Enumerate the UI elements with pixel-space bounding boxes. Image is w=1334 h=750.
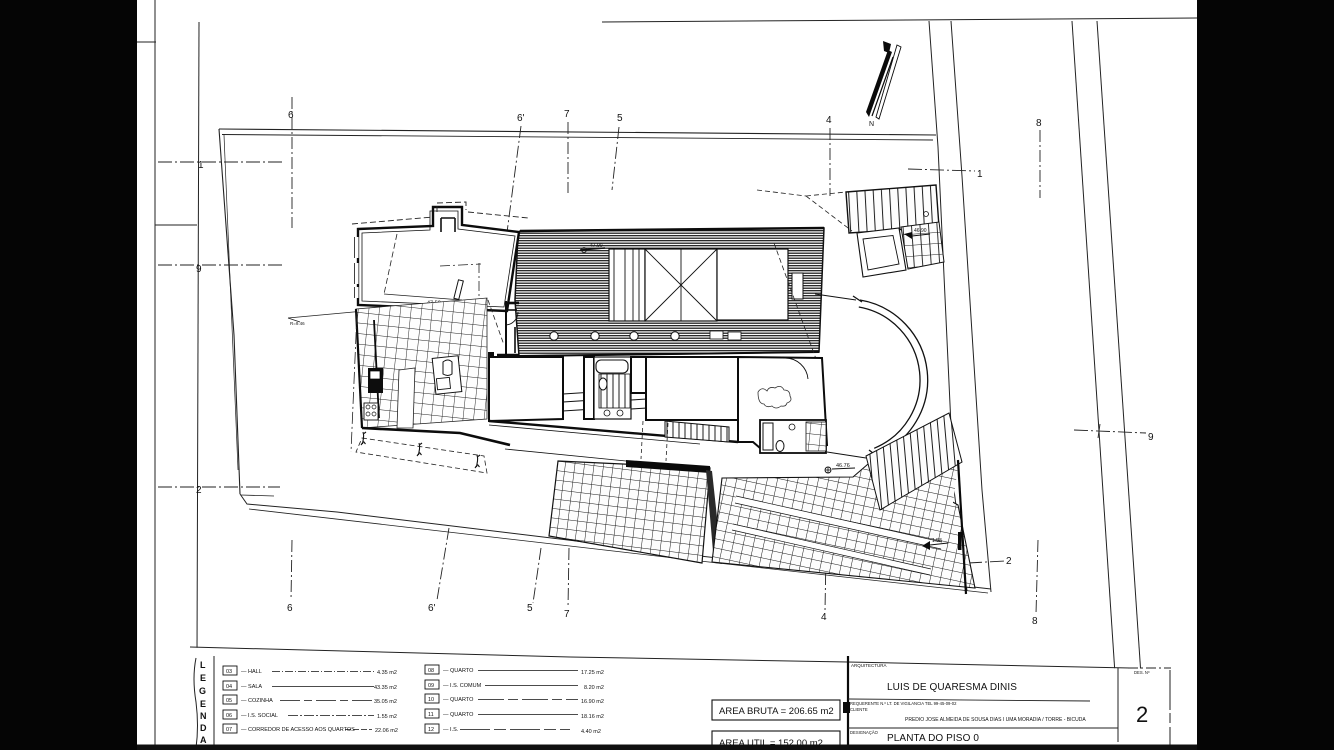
svg-text:R=9.46: R=9.46 [290, 321, 305, 326]
svg-text:17.25 m2: 17.25 m2 [581, 670, 604, 676]
svg-text:— QUARTO: — QUARTO [443, 697, 474, 703]
svg-text:— I.S. SOCIAL: — I.S. SOCIAL [241, 713, 278, 719]
svg-text:7: 7 [564, 109, 570, 120]
svg-text:N: N [869, 121, 874, 128]
svg-text:— I.S. COMUM: — I.S. COMUM [443, 683, 482, 689]
svg-text:7: 7 [564, 609, 570, 620]
svg-text:A: A [200, 735, 207, 745]
svg-text:04: 04 [226, 684, 232, 690]
svg-text:1: 1 [977, 169, 983, 180]
svg-text:— I.S.: — I.S. [443, 727, 459, 733]
svg-text:CLIENTE: CLIENTE [850, 707, 868, 712]
svg-text:8: 8 [1036, 118, 1042, 129]
svg-text:43.35 m2: 43.35 m2 [374, 685, 397, 691]
svg-text:11: 11 [428, 712, 434, 718]
svg-text:07: 07 [226, 727, 232, 733]
svg-text:5: 5 [617, 113, 623, 124]
svg-text:G: G [199, 686, 206, 696]
svg-text:1.55 m2: 1.55 m2 [377, 714, 397, 720]
svg-text:46.76: 46.76 [836, 463, 850, 469]
svg-text:— CORREDOR DE ACESSO AOS QUART: — CORREDOR DE ACESSO AOS QUARTOS [241, 727, 355, 733]
svg-text:4.40 m2: 4.40 m2 [581, 729, 601, 735]
svg-text:4: 4 [821, 612, 827, 623]
svg-text:2: 2 [1006, 556, 1012, 567]
svg-text:E: E [200, 673, 206, 683]
svg-text:2: 2 [1136, 702, 1148, 727]
svg-text:1.58: 1.58 [932, 538, 942, 544]
svg-text:9: 9 [1148, 432, 1154, 443]
svg-text:PLANTA DO PISO 0: PLANTA DO PISO 0 [887, 733, 979, 744]
svg-text:ARQUITECTURA: ARQUITECTURA [851, 663, 887, 668]
svg-text:05: 05 [226, 698, 232, 704]
svg-text:22.06 m2: 22.06 m2 [375, 728, 398, 734]
svg-text:9: 9 [196, 264, 202, 275]
svg-text:— HALL: — HALL [241, 669, 262, 675]
svg-text:6': 6' [428, 603, 436, 614]
svg-text:REQUERENTE N.º LT. DE VIGILA: REQUERENTE N.º LT. DE VIGILANCIA TEL 99-… [850, 701, 957, 706]
svg-text:— SALA: — SALA [241, 684, 262, 690]
svg-text:47.90: 47.90 [590, 243, 603, 249]
svg-text:DESIGNAÇÃO: DESIGNAÇÃO [850, 730, 879, 735]
svg-text:4.35 m2: 4.35 m2 [377, 670, 397, 676]
svg-text:— COZINHA: — COZINHA [241, 698, 273, 704]
svg-text:D: D [200, 723, 207, 733]
svg-text:10: 10 [428, 697, 434, 703]
svg-text:12: 12 [428, 727, 434, 733]
svg-text:06: 06 [226, 713, 232, 719]
svg-text:6': 6' [517, 113, 525, 124]
svg-text:4: 4 [826, 115, 832, 126]
svg-text:03: 03 [226, 669, 232, 675]
svg-text:N: N [200, 711, 207, 721]
svg-text:E: E [200, 699, 206, 709]
svg-text:46.90: 46.90 [914, 228, 927, 234]
svg-text:L: L [200, 660, 206, 670]
svg-text:6: 6 [287, 603, 293, 614]
svg-text:LUIS DE QUARESMA DINIS: LUIS DE QUARESMA DINIS [887, 682, 1017, 693]
svg-text:AREA BRUTA = 206.65 m2: AREA BRUTA = 206.65 m2 [719, 706, 834, 717]
svg-text:8.20 m2: 8.20 m2 [584, 685, 604, 691]
svg-text:18.16 m2: 18.16 m2 [581, 714, 604, 720]
svg-text:16.90 m2: 16.90 m2 [581, 699, 604, 705]
svg-text:09: 09 [428, 683, 434, 689]
svg-text:08: 08 [428, 668, 434, 674]
svg-text:PREDIO JOSE ALMEIDA DE SOUSA D: PREDIO JOSE ALMEIDA DE SOUSA DIAS I UMA … [905, 717, 1086, 723]
svg-text:DES. Nº: DES. Nº [1134, 670, 1150, 675]
svg-text:35.05 m2: 35.05 m2 [374, 699, 397, 705]
svg-text:2: 2 [196, 485, 202, 496]
svg-text:1: 1 [198, 160, 204, 171]
svg-text:6: 6 [288, 110, 294, 121]
svg-text:— QUARTO: — QUARTO [443, 712, 474, 718]
svg-text:— QUARTO: — QUARTO [443, 668, 474, 674]
svg-text:8: 8 [1032, 616, 1038, 627]
svg-text:5: 5 [527, 603, 533, 614]
